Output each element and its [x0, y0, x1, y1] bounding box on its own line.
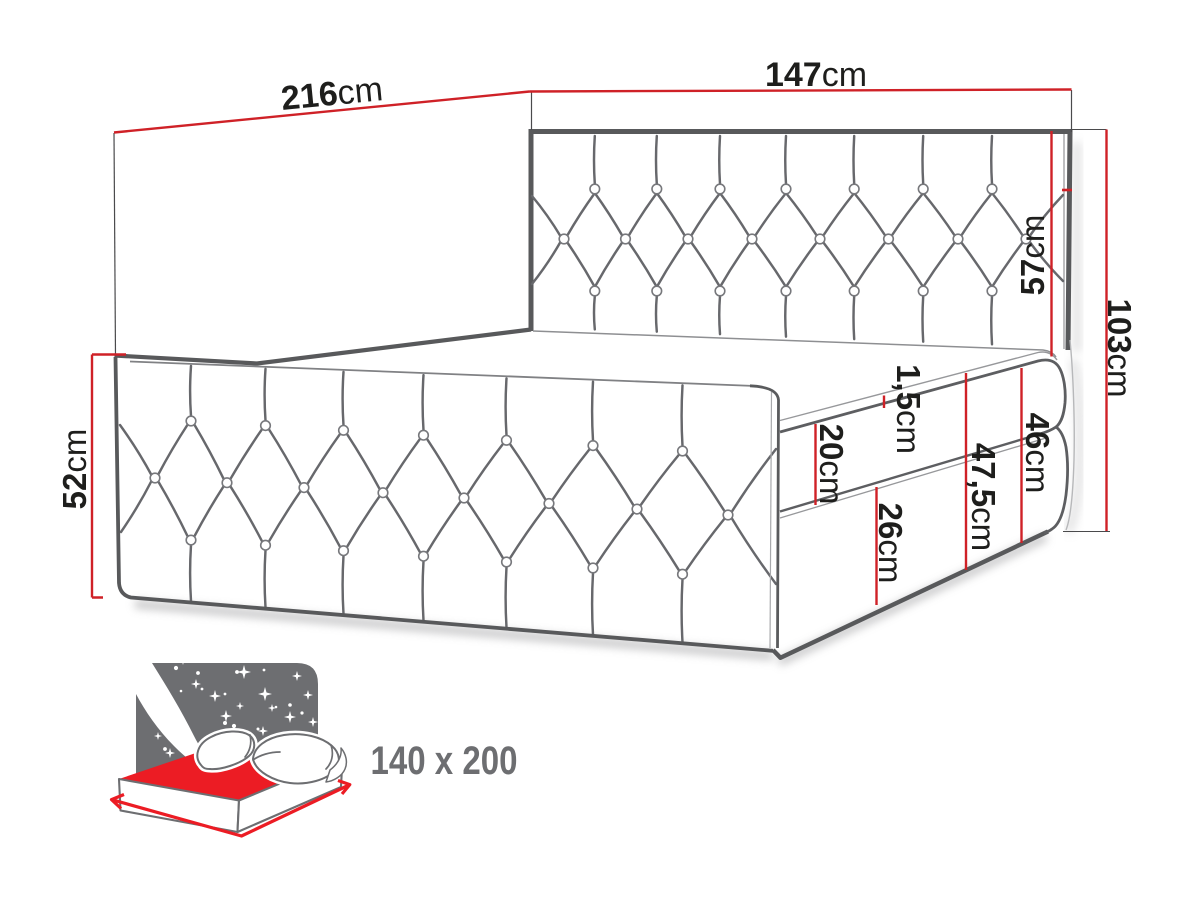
svg-text:103cm: 103cm: [1101, 298, 1138, 397]
svg-text:46cm: 46cm: [1019, 413, 1056, 494]
svg-text:26cm: 26cm: [872, 503, 909, 584]
svg-text:52cm: 52cm: [56, 429, 93, 510]
svg-text:1,5cm: 1,5cm: [890, 364, 927, 454]
svg-text:20cm: 20cm: [813, 424, 850, 505]
svg-text:47,5cm: 47,5cm: [965, 443, 1002, 551]
svg-text:140 x 200: 140 x 200: [371, 739, 518, 783]
svg-text:57cm: 57cm: [1014, 215, 1051, 296]
svg-text:147cm: 147cm: [765, 56, 867, 94]
